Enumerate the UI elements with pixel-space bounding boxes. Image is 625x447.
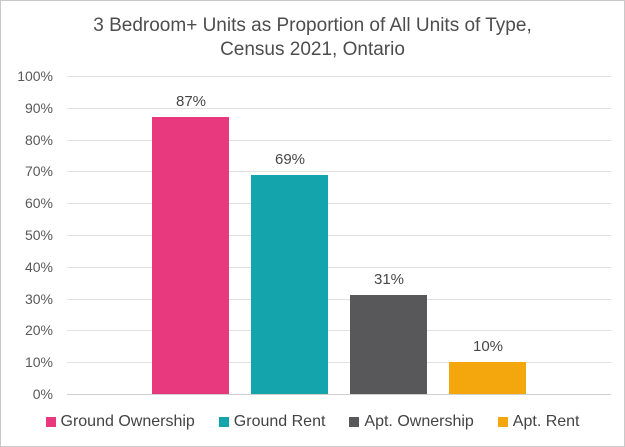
legend-label: Apt. Ownership (364, 413, 473, 431)
bar-ground-ownership (152, 117, 229, 394)
legend-item-ground-ownership: Ground Ownership (46, 413, 195, 431)
chart-legend: Ground OwnershipGround RentApt. Ownershi… (1, 413, 624, 431)
bar-ground-rent (251, 175, 328, 394)
y-axis-tick-label: 90% (5, 100, 53, 116)
legend-swatch-icon (349, 417, 359, 427)
y-axis-tick-label: 80% (5, 132, 53, 148)
gridline (67, 235, 611, 236)
legend-label: Ground Ownership (61, 413, 195, 431)
y-axis-tick-label: 50% (5, 227, 53, 243)
gridline (67, 140, 611, 141)
chart-title: 3 Bedroom+ Units as Proportion of All Un… (1, 14, 624, 62)
legend-label: Ground Rent (234, 413, 326, 431)
x-axis-line (67, 394, 611, 395)
chart-container: 3 Bedroom+ Units as Proportion of All Un… (0, 0, 625, 447)
legend-label: Apt. Rent (513, 413, 580, 431)
bar-value-label-apt-rent: 10% (448, 338, 528, 356)
gridline (67, 330, 611, 331)
gridline (67, 171, 611, 172)
bar-apt-ownership (350, 295, 427, 394)
legend-swatch-icon (498, 417, 508, 427)
legend-swatch-icon (219, 417, 229, 427)
bar-value-label-ground-rent: 69% (250, 151, 330, 169)
chart-title-line-2: Census 2021, Ontario (1, 38, 624, 62)
y-axis-tick-label: 20% (5, 322, 53, 338)
gridline (67, 267, 611, 268)
legend-item-apt-ownership: Apt. Ownership (349, 413, 473, 431)
gridline (67, 362, 611, 363)
gridline (67, 203, 611, 204)
legend-item-apt-rent: Apt. Rent (498, 413, 580, 431)
y-axis-tick-label: 0% (5, 386, 53, 402)
bar-value-label-ground-ownership: 87% (151, 93, 231, 111)
y-axis-tick-label: 70% (5, 163, 53, 179)
bar-apt-rent (449, 362, 526, 394)
y-axis-tick-label: 100% (5, 68, 53, 84)
bar-value-label-apt-ownership: 31% (349, 271, 429, 289)
legend-item-ground-rent: Ground Rent (219, 413, 326, 431)
legend-swatch-icon (46, 417, 56, 427)
gridline (67, 299, 611, 300)
gridline (67, 76, 611, 77)
y-axis-tick-label: 30% (5, 291, 53, 307)
gridline (67, 108, 611, 109)
chart-title-line-1: 3 Bedroom+ Units as Proportion of All Un… (1, 14, 624, 38)
y-axis-tick-label: 60% (5, 195, 53, 211)
y-axis-tick-label: 40% (5, 259, 53, 275)
y-axis-tick-label: 10% (5, 354, 53, 370)
